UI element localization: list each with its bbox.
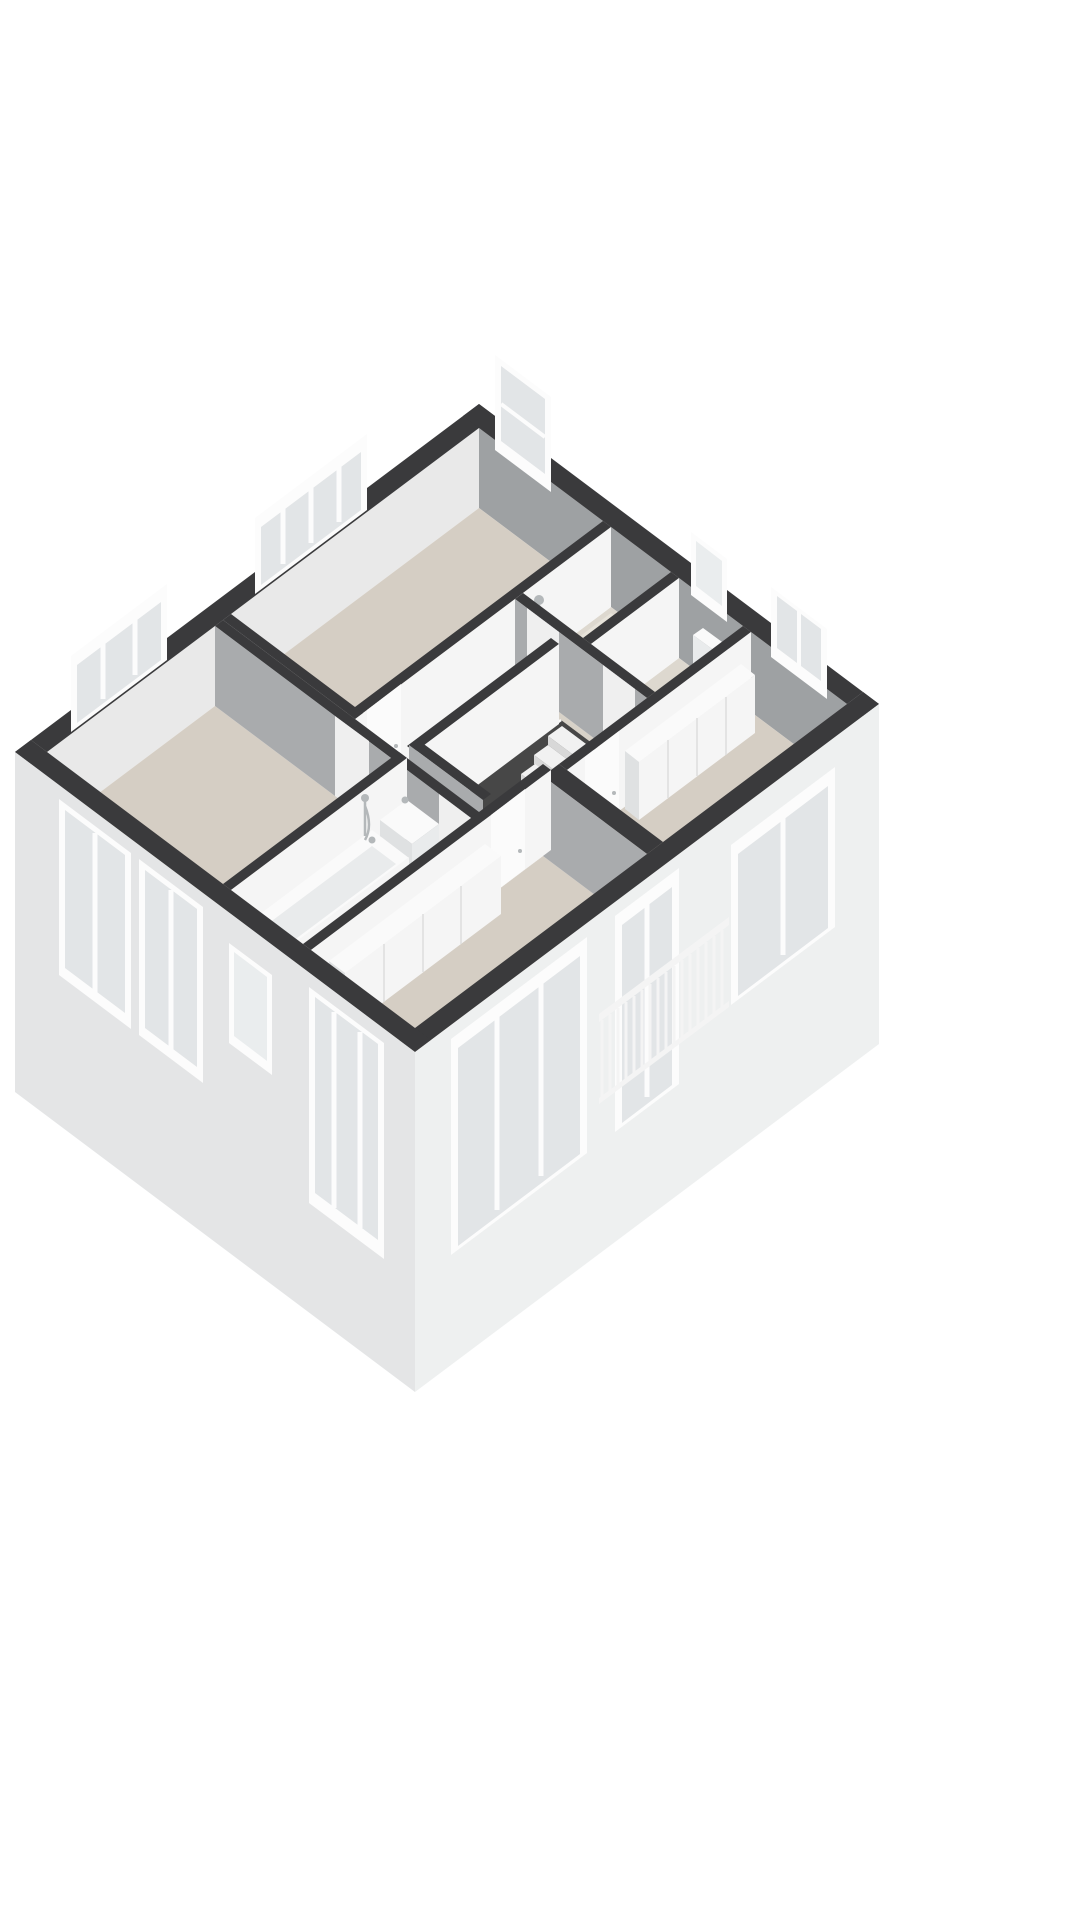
door-handle <box>394 744 398 748</box>
washbasin-tap <box>402 797 409 804</box>
door-handle <box>518 849 522 853</box>
floorplan-stage <box>0 0 1080 1920</box>
wardrobe-side <box>625 751 639 820</box>
bathtub-shower-head <box>361 794 369 802</box>
bathtub-tap <box>369 837 376 844</box>
door-handle <box>612 791 616 795</box>
floorplan-3d-render <box>0 0 1080 1920</box>
